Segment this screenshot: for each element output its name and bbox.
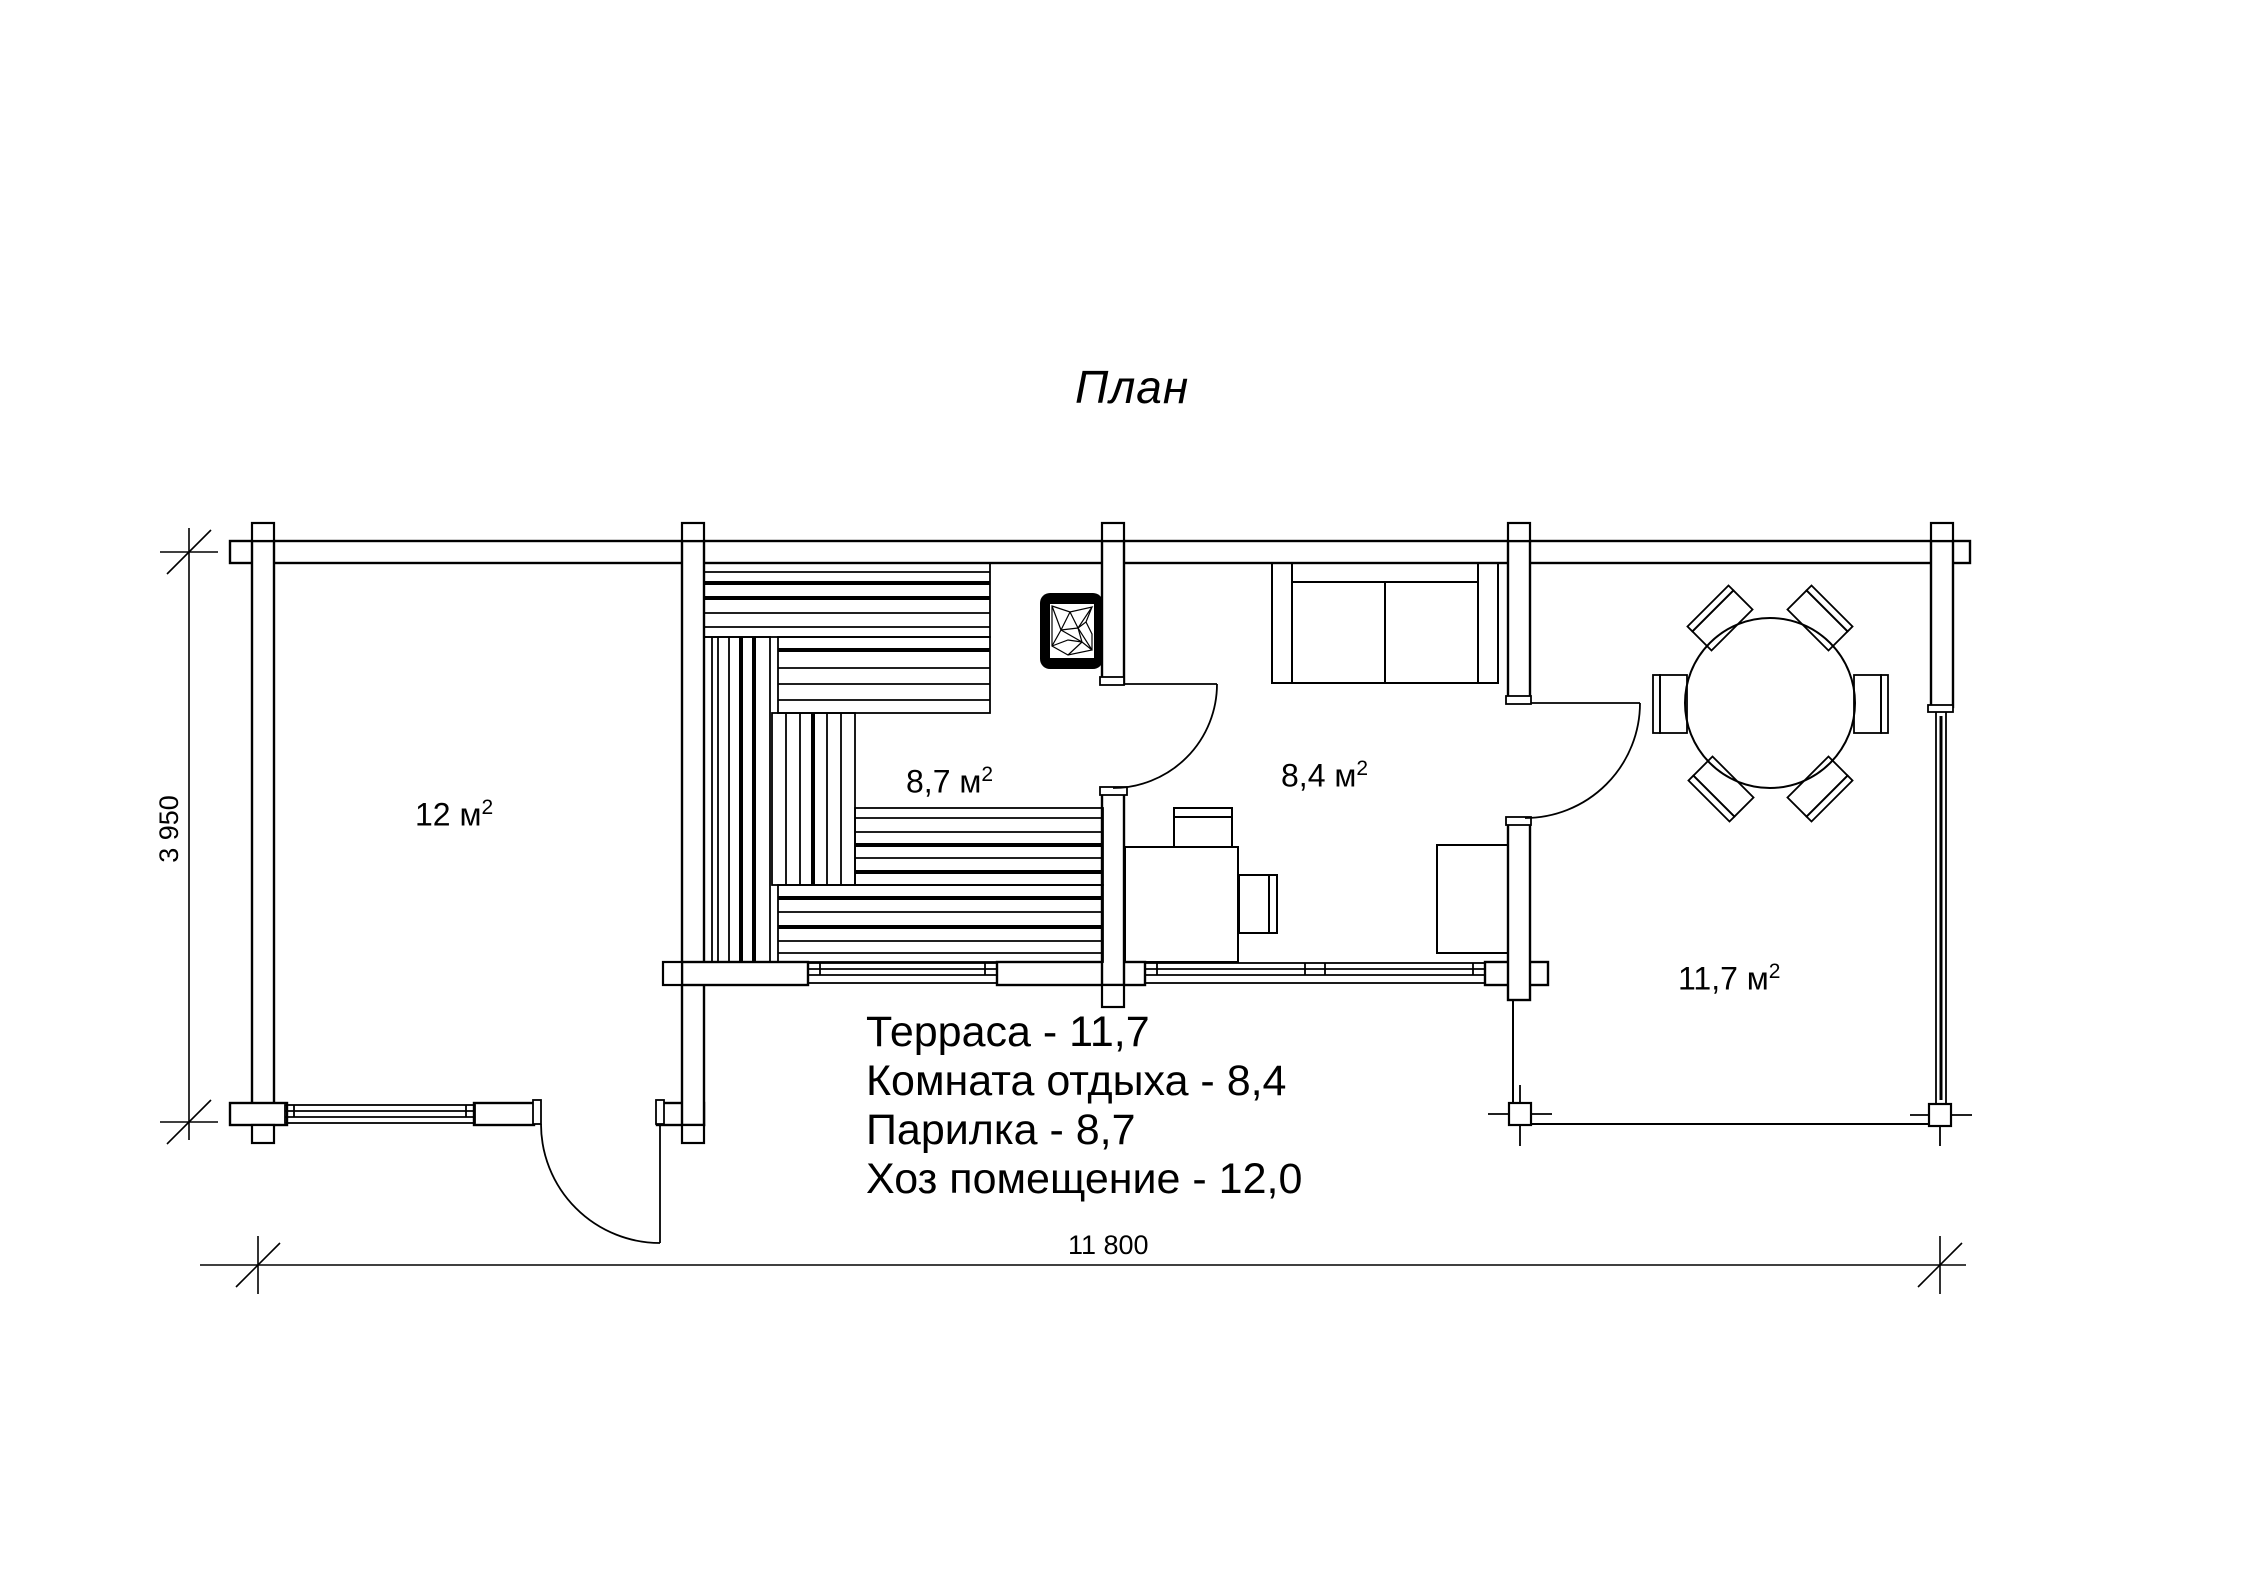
room-area-sup: 2 [481, 796, 493, 819]
window-hoz [285, 1105, 475, 1123]
room-area-sup: 2 [1356, 757, 1368, 780]
legend-line-hoz: Хоз помещение - 12,0 [866, 1155, 1302, 1204]
sauna-stove [1040, 593, 1103, 669]
sofa [1272, 563, 1498, 683]
room-area-sup: 2 [981, 763, 993, 786]
legend-line-parilka: Парилка - 8,7 [866, 1106, 1302, 1155]
room-label-terrasa: 11,7 м2 [1678, 960, 1780, 998]
floor-plan-page: План 12 м2 8,7 м2 8,4 м2 11,7 м2 Терраса… [0, 0, 2245, 1587]
terrace-posts [1488, 1085, 1972, 1146]
floor-plan-drawing [0, 0, 2245, 1587]
room-label-parilka: 8,7 м2 [906, 763, 993, 801]
dining-table [1685, 618, 1855, 788]
plan-title: План [1075, 360, 1189, 414]
chair-northeast [1787, 585, 1852, 650]
legend-line-otdyha: Комната отдыха - 8,4 [866, 1057, 1302, 1106]
room-label-otdyha: 8,4 м2 [1281, 757, 1368, 795]
window-sauna [808, 963, 997, 983]
terrace-glazing [1928, 705, 1953, 1104]
dimension-width-label: 11 800 [1068, 1230, 1149, 1261]
room-area-sup: 2 [1769, 960, 1781, 983]
door-sauna-rest [1100, 677, 1217, 795]
room-area-hoz: 12 м [415, 797, 481, 833]
room-area-otdyha: 8,4 м [1281, 758, 1356, 794]
desk-and-chair [1125, 808, 1277, 962]
room-area-parilka: 8,7 м [906, 764, 981, 800]
legend: Терраса - 11,7 Комната отдыха - 8,4 Пари… [866, 1008, 1302, 1204]
chair-east [1854, 675, 1888, 733]
door-rest-terrace [1506, 696, 1640, 825]
chair-southwest [1688, 756, 1753, 821]
dining-chairs [1653, 585, 1888, 821]
dimension-height-label: 3 950 [154, 779, 182, 879]
chair-west [1653, 675, 1687, 733]
window-rest-room [1145, 963, 1485, 983]
door-hoz-exterior [533, 1100, 664, 1243]
cabinet [1437, 845, 1508, 953]
room-label-hoz: 12 м2 [415, 796, 493, 834]
chair-northwest [1687, 585, 1752, 650]
legend-line-terrasa: Терраса - 11,7 [866, 1008, 1302, 1057]
room-area-terrasa: 11,7 м [1678, 961, 1769, 997]
terrace-edge [1513, 1000, 1929, 1124]
chair-southeast [1787, 756, 1852, 821]
